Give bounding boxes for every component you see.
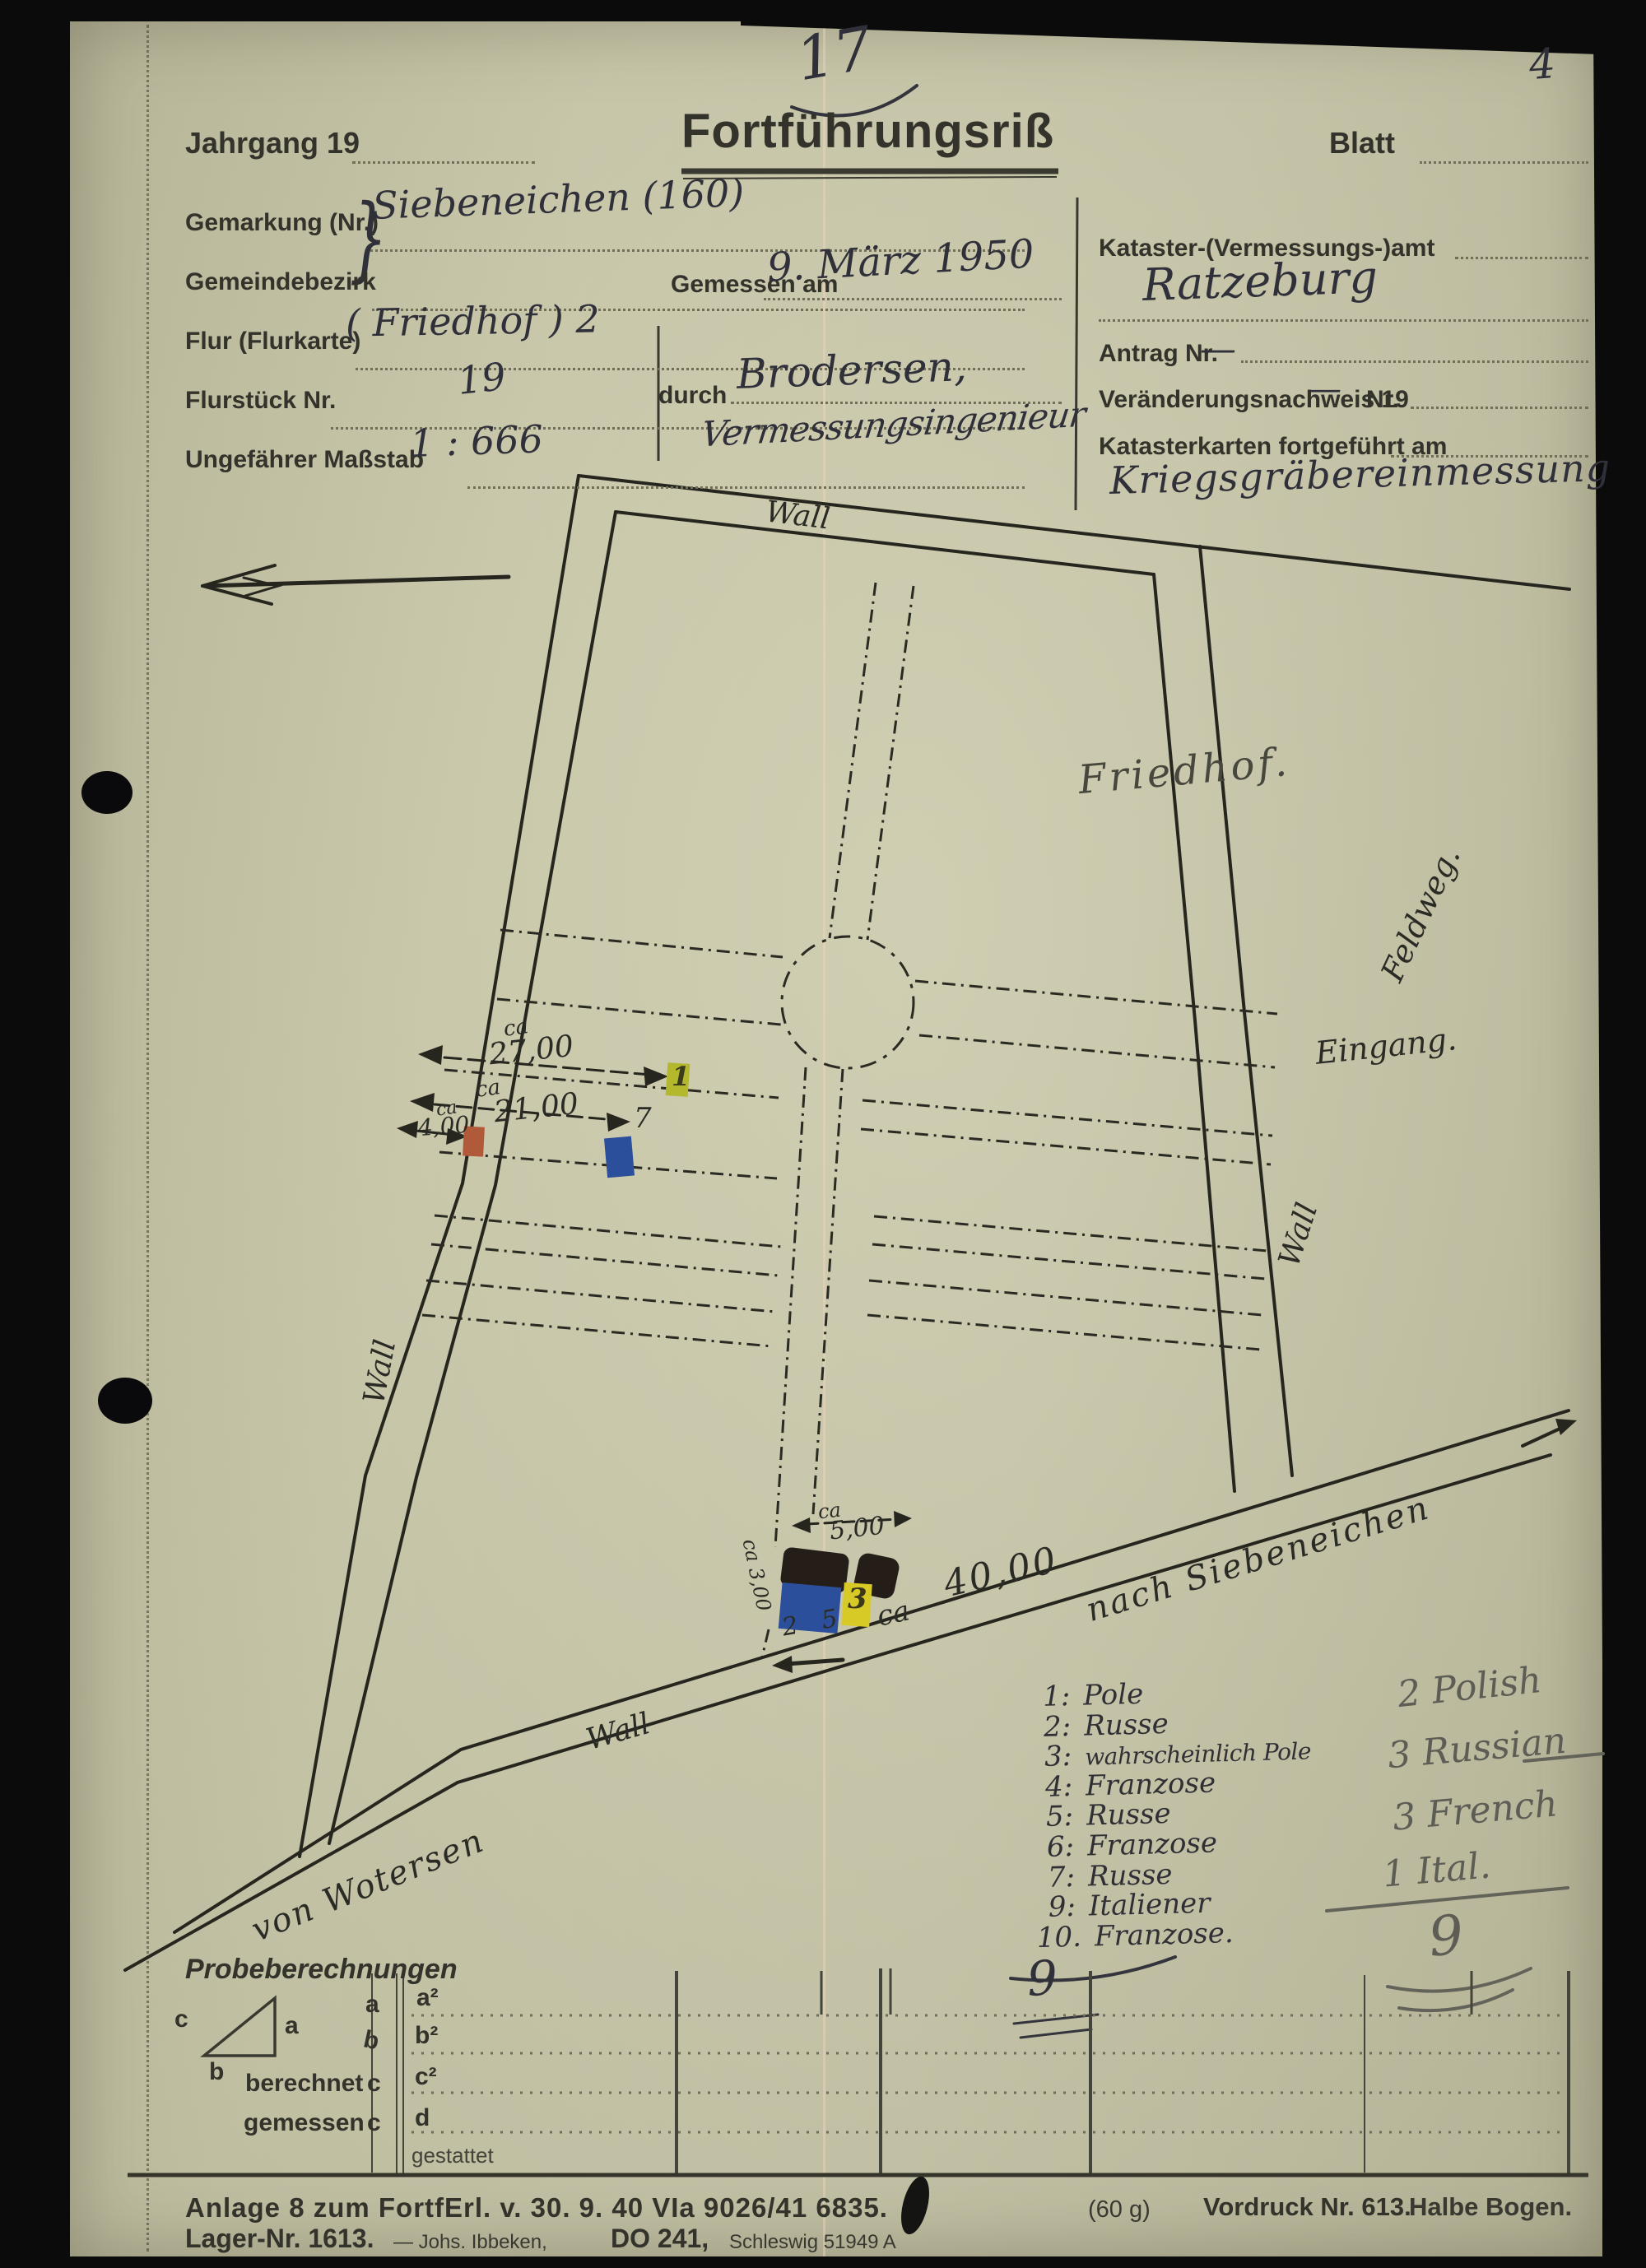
probe-triangle-label-a: a <box>285 2013 299 2039</box>
legend-item-name: Franzose <box>1087 1826 1218 1862</box>
veraenderungsnachweis-dotted-line <box>1411 377 1588 409</box>
legend-item: 3:wahrscheinlich Pole <box>1019 1734 1312 1772</box>
grave-number-1: 1 <box>672 1063 690 1091</box>
amt-value-dotted-line <box>1099 290 1588 322</box>
hole-punch-top-icon <box>81 771 133 814</box>
scanned-document-page: { "page": { "corner_number": "17", "page… <box>0 0 1646 2268</box>
grave-number-7: 7 <box>634 1104 652 1134</box>
page-title: Fortführungsriß <box>681 107 1054 157</box>
gemessen-dotted-line <box>764 268 1062 300</box>
grave-legend-list: 1:Pole2:Russe3:wahrscheinlich Pole4:Fran… <box>1017 1673 1316 1952</box>
veraenderungsnachweis-value: — <box>1309 372 1341 407</box>
footer-anlage-line: Anlage 8 zum FortfErl. v. 30. 9. 40 VIa … <box>185 2194 888 2223</box>
footer-halbe-bogen: Halbe Bogen. <box>1409 2194 1572 2221</box>
massstab-dotted-line <box>467 457 1025 489</box>
blatt-dotted-line <box>1420 132 1588 164</box>
probe-col-a2: a² <box>416 1985 439 2011</box>
durch-label: durch <box>658 383 727 409</box>
amt-dotted-line <box>1455 227 1588 259</box>
map-boundary <box>125 476 1569 1970</box>
probeberechnungen-heading: Probeberechnungen <box>185 1955 458 1985</box>
gemeindebezirk-label: Gemeindebezirk <box>185 269 376 295</box>
probe-row-berechnet-c: c <box>367 2070 381 2097</box>
legend-item-number: 2: <box>1018 1710 1072 1745</box>
jahrgang-dotted-line <box>352 132 535 164</box>
veraenderungsnachweis-nr-label: Nr. <box>1366 387 1399 413</box>
legend-item-number: 5: <box>1021 1800 1074 1834</box>
flurstueck-label: Flurstück Nr. <box>185 388 336 414</box>
footer-lager-nr: Lager-Nr. 1613. <box>185 2225 374 2253</box>
jahrgang-label: Jahrgang 19 <box>185 128 360 159</box>
footer-printer: — Johs. Ibbeken, <box>393 2232 547 2252</box>
probe-col-d: d <box>415 2105 430 2131</box>
pencil-summary-total: 9 <box>1426 1906 1466 1966</box>
page-number: 4 <box>1527 42 1556 87</box>
footer-vordruck: Vordruck Nr. 613. <box>1203 2194 1411 2221</box>
ink-blot <box>896 2173 935 2237</box>
corner-sheet-number: 17 <box>792 17 876 91</box>
legend-item-number: 7: <box>1021 1861 1075 1895</box>
probe-row-berechnet: berechnet <box>245 2070 363 2097</box>
legend-item-name: Franzose. <box>1094 1917 1234 1953</box>
grave-mark-7 <box>604 1136 635 1178</box>
measure-ca-6: ca <box>875 1596 913 1632</box>
legend-item-name: Franzose <box>1086 1766 1216 1802</box>
grave-marks <box>463 1062 901 1634</box>
legend-item-number: 9: <box>1022 1890 1076 1925</box>
probe-triangle-label-b: b <box>209 2059 224 2085</box>
probe-row-gemessen-c: c <box>367 2110 381 2136</box>
ink-total: 9 <box>1025 1953 1058 2005</box>
probe-triangle-label-c: c <box>174 2006 188 2033</box>
north-arrow-icon <box>202 565 509 604</box>
footer-weight: (60 g) <box>1088 2197 1151 2222</box>
legend-item-number: 4: <box>1020 1770 1073 1805</box>
grave-number-3: 3 <box>848 1585 867 1615</box>
legend-item-number: 3: <box>1019 1740 1072 1774</box>
pencil-summary-italian: 1 Ital. <box>1381 1847 1492 1894</box>
legend-item-number: 6: <box>1021 1830 1075 1865</box>
measure-4-00: 4,00 <box>417 1113 470 1141</box>
veraenderungsnachweis-label: Veränderungsnachweis 19 <box>1099 387 1409 413</box>
footer-do-number: DO 241, <box>611 2225 709 2253</box>
probe-col-gestattet: gestattet <box>411 2145 494 2167</box>
blatt-label: Blatt <box>1329 128 1395 159</box>
antrag-value: — <box>1200 331 1236 369</box>
hole-punch-icons <box>81 771 152 1424</box>
legend-item-name: Pole <box>1083 1678 1144 1713</box>
flur-label: Flur (Flurkarte) <box>185 328 360 355</box>
legend-item-name: wahrscheinlich Pole <box>1085 1734 1312 1771</box>
flurstueck-value: 19 <box>456 356 508 401</box>
probe-row-a: a <box>365 1991 379 2018</box>
measure-5-00: 5,00 <box>829 1513 886 1545</box>
footer-ort: Schleswig 51949 A <box>729 2232 896 2252</box>
hole-punch-bottom-icon <box>98 1378 152 1424</box>
probe-col-c2: c² <box>415 2064 437 2090</box>
massstab-label: Ungefährer Maßstab <box>185 447 424 473</box>
probe-row-gemessen: gemessen <box>244 2110 365 2136</box>
legend-item-number: 1: <box>1017 1680 1071 1714</box>
map-label-wall-top: Wall <box>764 496 831 535</box>
probe-triangle-icon <box>204 1998 275 2056</box>
flur-value: ( Friedhof ) 2 <box>346 299 600 343</box>
probe-col-b2: b² <box>415 2023 438 2049</box>
antrag-dotted-line <box>1241 331 1588 363</box>
